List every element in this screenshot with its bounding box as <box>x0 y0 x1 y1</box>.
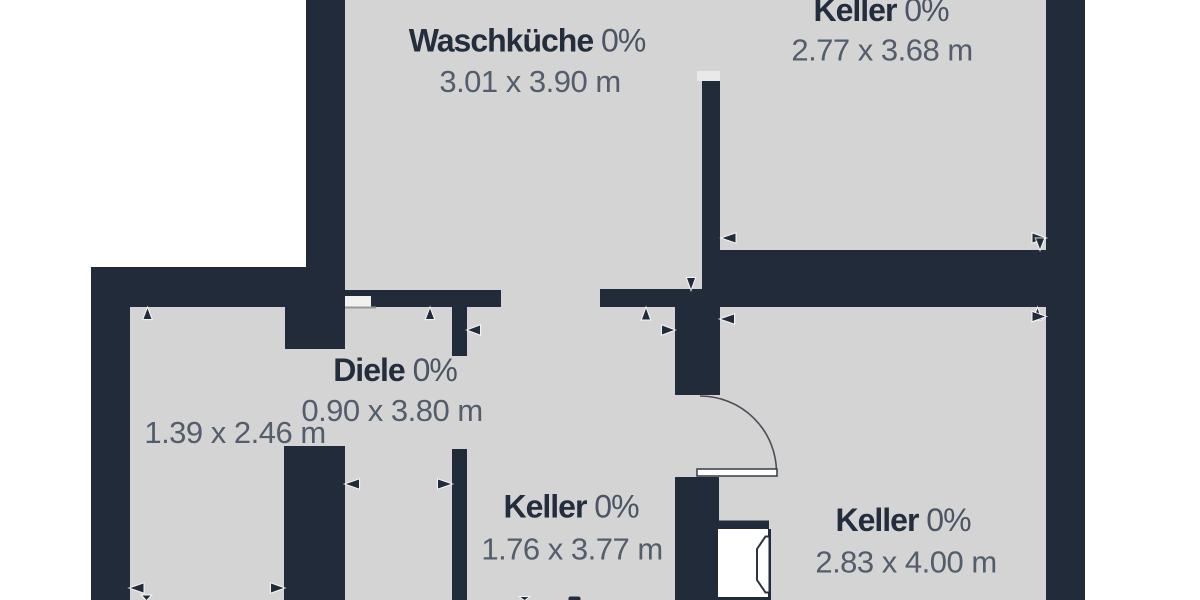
svg-text:3.01 x 3.90 m: 3.01 x 3.90 m <box>439 64 620 99</box>
svg-text:2.83 x 4.00 m: 2.83 x 4.00 m <box>815 545 996 580</box>
svg-text:1.76 x 3.77 m: 1.76 x 3.77 m <box>481 532 662 567</box>
svg-text:1.39 x 2.46 m: 1.39 x 2.46 m <box>144 415 325 450</box>
svg-text:Keller 0%: Keller 0% <box>503 489 639 525</box>
svg-text:Waschküche 0%: Waschküche 0% <box>409 23 646 59</box>
svg-text:Keller 0%: Keller 0% <box>835 502 971 538</box>
svg-text:Keller 0%: Keller 0% <box>813 0 949 28</box>
svg-text:Diele 0%: Diele 0% <box>333 352 457 388</box>
svg-text:0.90 x 3.80 m: 0.90 x 3.80 m <box>301 393 482 428</box>
svg-text:2.77 x 3.68 m: 2.77 x 3.68 m <box>791 33 972 68</box>
